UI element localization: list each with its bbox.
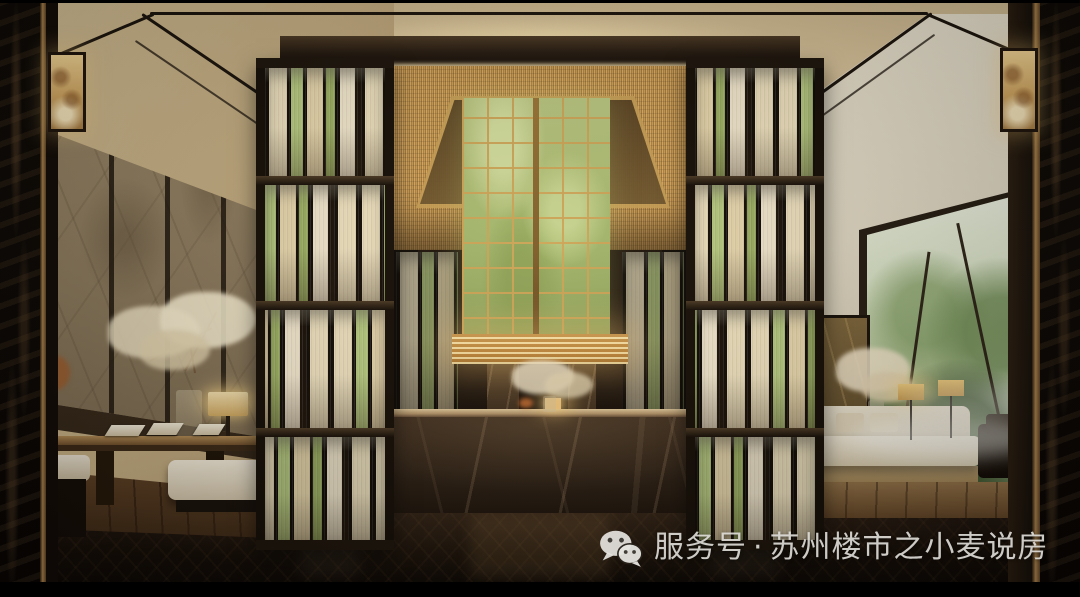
floor-reflection-center — [470, 513, 610, 579]
watermark: 服务号·苏州楼市之小麦说房 — [598, 529, 1049, 567]
ceiling-trim-top — [150, 12, 928, 15]
tower-center-mullion — [533, 98, 539, 344]
pillar-cap — [256, 58, 394, 68]
pillar-rail — [686, 176, 824, 185]
lobby-photo: 服务号·苏州楼市之小麦说房 — [0, 0, 1080, 597]
pillar-slats — [695, 437, 815, 540]
pillar-slats — [695, 68, 815, 176]
pillar-rail — [686, 428, 824, 437]
desk-vase — [543, 396, 556, 412]
watermark-text: 服务号·苏州楼市之小麦说房 — [654, 530, 1049, 566]
foreground-pillar-left — [0, 0, 40, 597]
table-lamp-left — [208, 392, 248, 416]
mini-screen-left — [396, 252, 458, 412]
pillar-slats — [265, 437, 385, 540]
watermark-account-type: 服务号 — [654, 530, 747, 565]
table-lamp-stem — [226, 416, 230, 436]
pillar-slats — [265, 185, 385, 301]
bench — [168, 460, 270, 500]
books — [105, 425, 146, 436]
mini-screen-right — [622, 252, 684, 412]
wood-platform-right — [786, 482, 1040, 518]
watermark-separator: · — [753, 530, 764, 565]
wall-sconce-right — [1000, 48, 1038, 132]
screen-pillar-left — [256, 58, 394, 550]
wall-sconce-left — [48, 52, 86, 132]
pillar-slats — [265, 310, 385, 428]
console-table-top — [55, 436, 267, 445]
pillar-cap — [256, 540, 394, 550]
screen-pillar-right — [686, 58, 824, 550]
bottom-black-bar — [0, 582, 1080, 597]
foreground-pillar-right — [1040, 0, 1080, 597]
wechat-icon — [598, 529, 644, 567]
pillar-slats — [695, 185, 815, 301]
bench-plinth — [176, 500, 262, 512]
watermark-account-name: 苏州楼市之小麦说房 — [770, 530, 1049, 565]
sconce-glass — [51, 55, 83, 129]
pillar-rail — [256, 301, 394, 310]
pillar-rail — [686, 301, 824, 310]
onyx-feature-tower — [462, 98, 610, 344]
pillar-slats — [265, 68, 385, 176]
pillar-slats — [695, 310, 815, 428]
pillar-rail — [256, 428, 394, 437]
pillar-rail — [256, 176, 394, 185]
pillar-cap — [686, 58, 824, 68]
table-leg — [96, 451, 114, 505]
sconce-glass — [1003, 51, 1035, 129]
console-table-edge — [55, 445, 267, 451]
top-black-bar — [0, 0, 1080, 3]
